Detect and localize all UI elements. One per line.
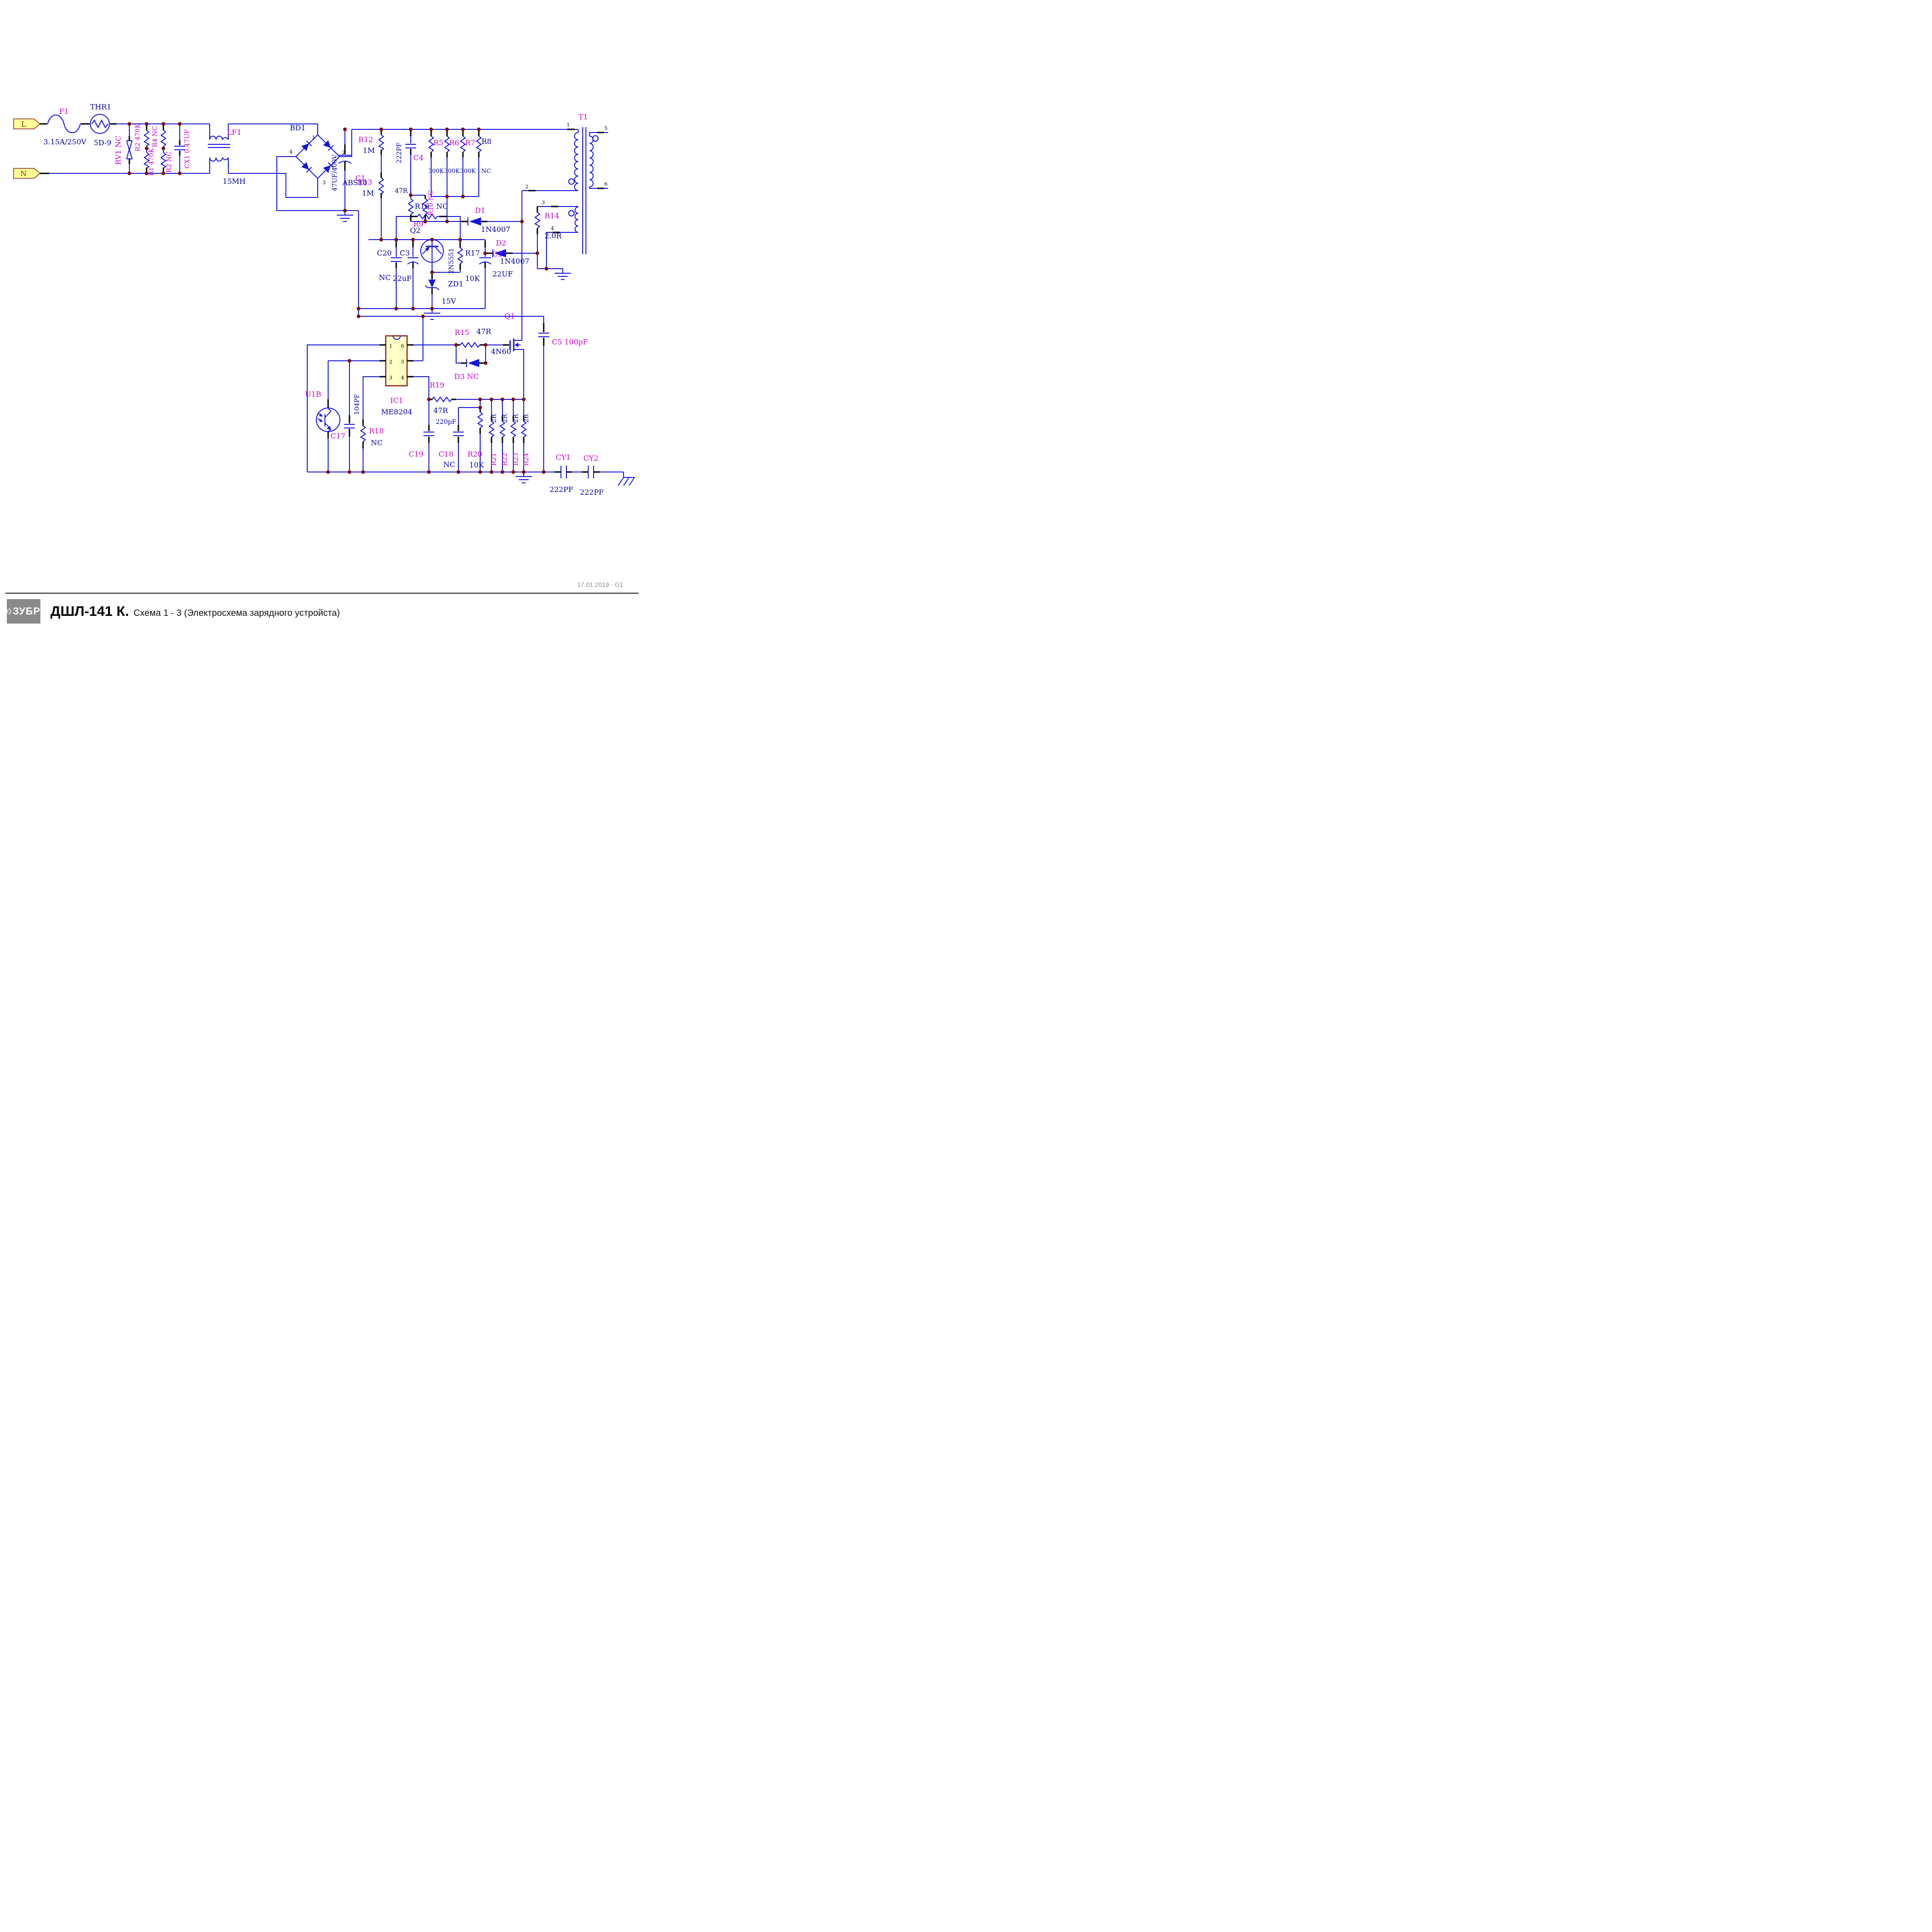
label-q2-ref: Q2 [410, 226, 420, 235]
junction-dot [484, 343, 487, 347]
label-r21-val: 2R [491, 414, 498, 423]
label-d3: D3 NC [454, 372, 479, 381]
label-r5-val: 300K [428, 168, 444, 175]
junction-dot [145, 122, 148, 126]
junction-dot [162, 147, 165, 150]
junction-dot [484, 361, 487, 365]
label-bd1-p1: 1 [312, 135, 315, 141]
label-cy1-val: 222PF [550, 485, 573, 494]
junction-dot [542, 470, 546, 474]
junction-dot [430, 270, 434, 274]
junction-dot [457, 470, 460, 474]
label-ic1-p3: 3 [389, 375, 393, 381]
brand-name: ЗУБР [13, 605, 40, 617]
lf1-symbol [208, 136, 230, 173]
label-c1-val: 47UF/400V [331, 154, 339, 192]
label-q1-val: 4N60 [491, 347, 511, 356]
junction-dot [478, 470, 482, 474]
label-r5-ref: R5 [433, 138, 443, 147]
label-r8-ref: R8 [482, 137, 492, 146]
junction-dot [458, 238, 462, 241]
label-u1b: U1B [305, 390, 321, 398]
label-c3-val: 22uF [393, 274, 412, 283]
label-rv1: RV1 NC [114, 136, 123, 165]
label-r17-val: 10K [465, 274, 480, 283]
label-r18-val: NC [371, 438, 383, 447]
label-lf1-val: 15MH [223, 177, 246, 186]
junction-dot [430, 238, 434, 241]
label-term-l: L [21, 120, 26, 128]
junction-dot [394, 238, 398, 241]
junction-dot [326, 470, 330, 474]
label-r13-ref: R13 [358, 178, 372, 187]
label-d1-ref: D1 [475, 206, 485, 215]
label-t1-p3: 3 [542, 200, 545, 206]
label-zd1-ref: ZD1 [448, 280, 463, 288]
junction-dot [411, 238, 415, 241]
label-q1-ref: Q1 [504, 312, 515, 320]
q1-symbol [510, 339, 524, 399]
label-t1-p5: 5 [605, 125, 608, 131]
label-r2b: R2 NC [166, 152, 173, 173]
label-r13-val: 1M [362, 189, 374, 197]
junction-dot [427, 470, 431, 474]
junction-dot [454, 343, 458, 347]
label-r12-val: 1M [363, 146, 375, 155]
junction-dot [429, 128, 433, 131]
label-c18-ref: C18 [438, 450, 453, 458]
label-r6-ref: R6 [449, 138, 459, 147]
junction-dot [445, 220, 449, 223]
junction-dot [178, 122, 182, 126]
label-r6-val: 300K [444, 168, 460, 175]
junction-dot [427, 398, 431, 401]
label-t1-p1: 1 [567, 122, 570, 128]
junction-dot [461, 195, 465, 198]
label-r7-ref: R7 [465, 138, 475, 147]
junction-dot [430, 307, 434, 310]
label-c19-ref: C19 [408, 450, 423, 458]
live-terminal [14, 119, 40, 129]
label-r9-val: 47R [395, 187, 408, 195]
label-thr1-ref: THR1 [90, 103, 112, 111]
label-ic1-p6: 6 [401, 343, 404, 349]
label-c4-ref: C4 [413, 153, 423, 162]
schematic-page: LNF13.15A/250VTHR15D-9RV1 NCR2 470KR1 47… [0, 0, 644, 644]
junction-dot [361, 470, 365, 474]
label-lf1-ref: LF1 [227, 128, 241, 137]
junction-dot [348, 470, 351, 474]
label-r1a: R1 470K [148, 148, 155, 176]
label-r23-ref: R23 [512, 453, 520, 466]
label-q2-val: 2N5551 [448, 248, 455, 274]
label-r12-ref: R12 [359, 135, 373, 144]
label-r20-ref: R20 [467, 450, 482, 458]
junction-dot [483, 251, 487, 255]
label-t1-p6: 6 [605, 181, 608, 187]
junction-dot [522, 470, 526, 474]
junction-dot [490, 470, 493, 474]
junction-dot [477, 128, 481, 131]
brand-logo: ЗУБР [7, 599, 40, 624]
junction-dot [490, 398, 493, 401]
label-r4: R4 NC [152, 126, 159, 147]
label-r19-ref: R19 [430, 381, 444, 389]
label-ic1-p5: 5 [401, 359, 404, 365]
label-d2-ref: D2 [496, 239, 506, 247]
junction-dot [520, 220, 524, 223]
fuse-symbol [48, 115, 80, 133]
junction-dot [409, 193, 413, 197]
label-bd1-ref: BD1 [290, 123, 306, 132]
label-r7-val: 300K [460, 168, 476, 175]
junction-dot [357, 315, 360, 318]
junction-dot [445, 128, 449, 131]
label-c18-val: NC [443, 460, 455, 469]
junction-dot [423, 220, 427, 223]
junction-dot [501, 470, 504, 474]
junction-dot [128, 122, 131, 126]
bridge-diodes [301, 140, 334, 173]
junction-dot [357, 307, 360, 310]
label-c3-ref: C3 [400, 249, 410, 257]
label-f1-val: 3.15A/250V [44, 138, 87, 146]
junction-dot [348, 359, 351, 363]
junction-dot [409, 128, 413, 131]
brand-arrow-icon [7, 602, 11, 620]
junction-dot [522, 398, 526, 401]
label-c2-ref: C2 [492, 250, 502, 258]
label-r8-val: NC [481, 168, 491, 175]
label-c20-ref: C20 [377, 249, 392, 257]
label-r15-val: 47R [477, 327, 492, 336]
label-c19-val: 220pF [436, 418, 457, 426]
label-r2a: R2 470K [134, 123, 142, 152]
junction-dot [511, 398, 515, 401]
footer: ЗУБР ДШЛ-141 К. Схема 1 - 3 (Электросхем… [7, 599, 340, 624]
label-ic1-p2: 2 [389, 359, 393, 365]
label-bd1-p2: 2 [342, 150, 345, 156]
label-c17-val: 104PF [354, 394, 361, 415]
junction-dot [445, 195, 449, 198]
label-bd1-p4: 4 [290, 149, 293, 155]
label-term-n: N [20, 169, 27, 178]
label-r19-val: 47R [433, 406, 448, 415]
junction-dot [162, 122, 165, 126]
label-r21-ref: R21 [491, 453, 498, 466]
label-r14-ref: R14 [545, 211, 559, 220]
label-r24-val: 2R [523, 414, 530, 423]
junction-dot [343, 128, 347, 131]
label-c4-val: 222PF [396, 143, 403, 163]
q2-symbol [421, 240, 443, 272]
label-r20-val: 10K [469, 461, 484, 469]
label-ic1-val: ME8204 [381, 408, 413, 416]
label-cy2-val: 222PF [580, 488, 604, 497]
label-t1-ref: T1 [579, 113, 588, 121]
label-r22-ref: R22 [501, 453, 509, 466]
junction-dot [478, 398, 482, 401]
label-t1-p2: 2 [526, 184, 529, 190]
junction-dot [394, 307, 398, 310]
label-r18-ref: R18 [369, 427, 383, 435]
junction-dot [421, 315, 425, 318]
varistor-symbol [127, 124, 132, 173]
label-ic1-p4: 4 [401, 375, 404, 381]
junction-dot [343, 209, 347, 212]
junction-dot [545, 267, 548, 270]
label-bd1-p3: 3 [323, 180, 326, 186]
junction-dot [162, 172, 165, 175]
footer-separator [5, 593, 639, 594]
label-r16-val: NC [436, 202, 448, 211]
junction-dot [411, 307, 415, 310]
label-c5: C5 100pF [552, 338, 588, 346]
label-cy2-ref: CY2 [584, 454, 599, 462]
label-c17-ref: C17 [330, 432, 345, 440]
label-ic1-ref: IC1 [390, 396, 403, 405]
label-t1-p4: 4 [551, 226, 554, 231]
junction-dot [536, 251, 539, 255]
junction-dot [178, 172, 182, 175]
junction-dot [379, 128, 383, 131]
label-c20-val: NC [379, 273, 391, 282]
label-r22-val: 2R [501, 414, 509, 423]
schema-subtitle: Схема 1 - 3 (Электросхема зарядного устр… [133, 608, 340, 619]
junction-dot [461, 128, 465, 131]
label-cy1-ref: CY1 [556, 453, 571, 462]
label-thr1-val: 5D-9 [94, 138, 112, 147]
label-f1-ref: F1 [59, 107, 69, 116]
label-r24-ref: R24 [523, 453, 530, 466]
junction-dot [128, 172, 131, 175]
label-r23-val: 2R [512, 414, 520, 423]
junction-dot [511, 470, 515, 474]
d1-symbol [469, 217, 481, 226]
label-r14-val: 2.0R [545, 231, 562, 240]
revision-date: 17.01.2019 · G1 [577, 581, 623, 588]
label-r15-ref: R15 [455, 328, 469, 337]
label-r16-ref: R16 [415, 202, 429, 211]
transformer-symbol [522, 127, 608, 269]
label-d2-val: 1N4007 [500, 257, 530, 265]
model-title: ДШЛ-141 К. [50, 603, 129, 619]
junction-dot [501, 398, 504, 401]
junction-dot [379, 238, 383, 241]
label-d1-val: 1N4007 [481, 225, 511, 234]
schematic-canvas: LNF13.15A/250VTHR15D-9RV1 NCR2 470KR1 47… [0, 0, 644, 581]
label-layer: LNF13.15A/250VTHR15D-9RV1 NCR2 470KR1 47… [20, 103, 608, 497]
d3-symbol [468, 359, 479, 367]
junction-dot [478, 406, 482, 409]
label-c2-val: 22UF [492, 270, 513, 278]
neutral-terminal [14, 168, 40, 178]
ground-symbol [555, 269, 571, 280]
label-cx1: CX1 0.47UF [184, 129, 191, 168]
label-zd1-val: 15V [442, 297, 456, 305]
label-r17-ref: R17 [465, 249, 480, 257]
label-ic1-p1: 1 [389, 343, 393, 349]
